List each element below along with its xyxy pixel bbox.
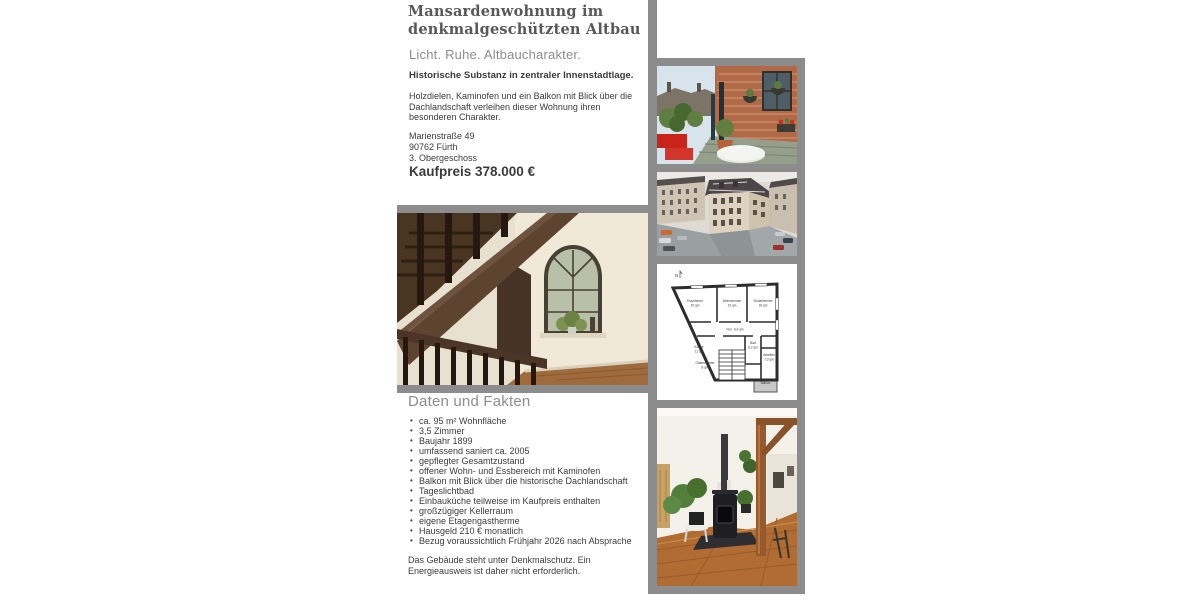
room-label: Esszimmer xyxy=(687,299,704,303)
svg-text:19 qm: 19 qm xyxy=(728,304,737,308)
denkmalschutz-note: Das Gebäude steht unter Denkmalschutz. E… xyxy=(408,555,642,577)
fact-item: umfassend saniert ca. 2005 xyxy=(409,446,649,456)
svg-text:8 qm: 8 qm xyxy=(701,366,708,370)
photo-column: N Esszimmer 20 qm Wohnzimmer 19 qm Schla… xyxy=(657,58,805,594)
address-street: Marienstraße 49 xyxy=(409,131,477,142)
page-title: Mansardenwohnung im denkmalgeschützten A… xyxy=(408,3,658,39)
address-block: Marienstraße 49 90762 Fürth 3. Obergesch… xyxy=(409,131,477,163)
arched-window-icon xyxy=(540,247,606,338)
description-text: Holzdielen, Kaminofen und ein Balkon mit… xyxy=(409,91,643,123)
svg-text:6,2 qm: 6,2 qm xyxy=(748,346,758,350)
room-label: Bad xyxy=(750,341,756,345)
lead-text: Historische Substanz in zentraler Innens… xyxy=(409,70,633,81)
photo-floorplan: N Esszimmer 20 qm Wohnzimmer 19 qm Schla… xyxy=(657,264,797,400)
svg-text:18 qm: 18 qm xyxy=(759,304,768,308)
room-label: Wohnzimmer xyxy=(723,299,743,303)
fact-item: Balkon mit Blick über die historische Da… xyxy=(409,476,649,486)
address-floor: 3. Obergeschoss xyxy=(409,153,477,164)
photo-staircase xyxy=(397,213,648,385)
fact-item: eigene Etagengastherme xyxy=(409,516,649,526)
fact-item: 3,5 Zimmer xyxy=(409,426,649,436)
photo-balcony xyxy=(657,66,797,164)
facts-heading: Daten und Fakten xyxy=(408,393,530,410)
photo-staircase-frame xyxy=(397,205,648,393)
room-label: Arbeiten xyxy=(763,353,775,357)
fact-item: offener Wohn- und Essbereich mit Kaminof… xyxy=(409,466,649,476)
fact-item: Bezug voraussichtlich Frühjahr 2026 nach… xyxy=(409,536,649,546)
room-label: Flur6,4 qm xyxy=(726,328,744,332)
room-label: Gästezimmer xyxy=(696,361,716,365)
room-label: Schlafzimmer xyxy=(753,299,773,303)
fact-item: Hausgeld 210 € monatlich xyxy=(409,526,649,536)
room-label: Küche xyxy=(694,345,703,349)
fact-item: großzügiger Kellerraum xyxy=(409,506,649,516)
facts-list: ca. 95 m² Wohnfläche 3,5 Zimmer Baujahr … xyxy=(409,416,649,546)
column-divider xyxy=(648,0,657,594)
fact-item: ca. 95 m² Wohnfläche xyxy=(409,416,649,426)
room-label: Balkon xyxy=(761,381,771,385)
fact-item: Tageslichtbad xyxy=(409,486,649,496)
fact-item: Einbauküche teilweise im Kaufpreis entha… xyxy=(409,496,649,506)
page-subtitle: Licht. Ruhe. Altbaucharakter. xyxy=(409,47,581,62)
svg-text:N: N xyxy=(675,273,678,278)
svg-text:11 qm: 11 qm xyxy=(695,350,704,354)
fact-item: gepflegter Gesamtzustand xyxy=(409,456,649,466)
fact-item: Baujahr 1899 xyxy=(409,436,649,446)
photo-interior xyxy=(657,408,797,586)
svg-text:20 qm: 20 qm xyxy=(691,304,700,308)
photo-street xyxy=(657,172,797,256)
price-label: Kaufpreis 378.000 € xyxy=(409,164,535,179)
address-city: 90762 Fürth xyxy=(409,142,477,153)
staircase-symbol xyxy=(719,350,745,380)
svg-text:7,3 qm: 7,3 qm xyxy=(764,358,774,362)
expose-page: Mansardenwohnung im denkmalgeschützten A… xyxy=(0,0,1200,600)
